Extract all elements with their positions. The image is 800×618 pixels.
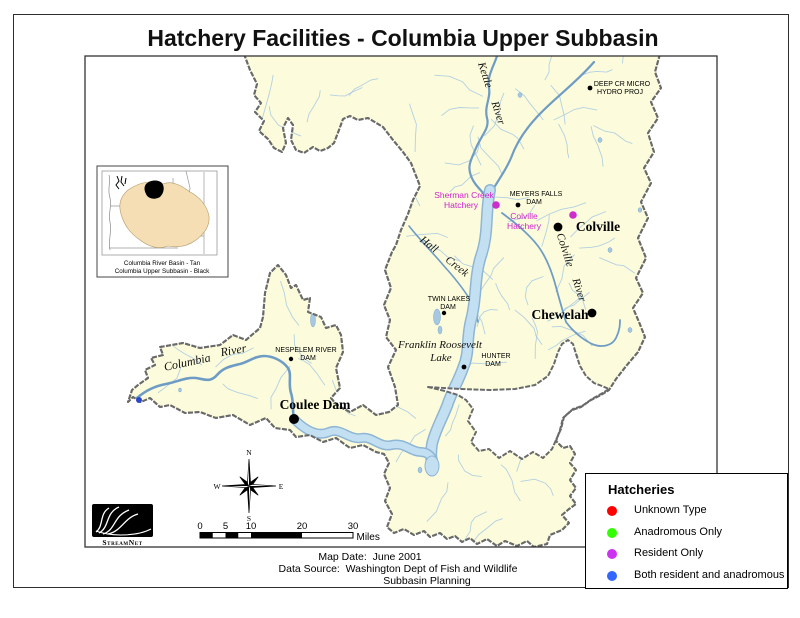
coulee-dam-city-point	[289, 414, 299, 424]
compass-letter-e: E	[279, 482, 284, 491]
legend-item-label: Resident Only	[634, 547, 703, 559]
compass-letter-n: N	[246, 448, 252, 457]
legend-dot-icon	[607, 506, 617, 516]
scale-tick-label: 20	[297, 521, 308, 532]
scale-bar-segment	[200, 533, 213, 539]
legend-dot-icon	[607, 528, 617, 538]
legend-item: Both resident and anadromous	[586, 569, 787, 583]
scale-tick-label: 0	[197, 521, 202, 532]
legend-dot-icon	[607, 549, 617, 559]
inset-locator-map: Columbia River Basin - Tan Columbia Uppe…	[97, 166, 228, 277]
coulee-dam-city-label: Coulee Dam	[280, 397, 352, 412]
nespelem-river-dam-label-2: DAM	[300, 355, 316, 362]
chewelah-city-label: Chewelah	[532, 307, 589, 322]
legend-item: Unknown Type	[586, 504, 787, 518]
scale-tick-label: 10	[246, 521, 257, 532]
stream-line	[155, 304, 170, 340]
franklin-roosevelt-lake-label-1: Franklin Roosevelt	[397, 339, 483, 351]
scale-bar-ticks: 05102030	[197, 521, 358, 532]
hunter-dam-point	[462, 365, 467, 370]
streamnet-logo: StreamNet	[92, 504, 153, 547]
legend-dot-icon	[607, 571, 617, 581]
scale-tick-label: 30	[348, 521, 359, 532]
scale-bar-segment	[251, 533, 302, 539]
scale-bar-segment	[226, 533, 239, 539]
twin-lakes-dam-label-1: TWIN LAKES	[428, 296, 471, 303]
pond	[518, 93, 522, 98]
deep-cr-micro-label-1: DEEP CR MICRO	[594, 81, 651, 88]
twin-lakes-dam-label-2: DAM	[440, 304, 456, 311]
stream-line	[187, 307, 217, 320]
legend-item: Resident Only	[586, 547, 787, 561]
sherman-creek-hatchery-label-1: Sherman Creek	[434, 190, 494, 200]
meyers-falls-dam-label-1: MEYERS FALLS	[510, 191, 563, 198]
pond	[327, 281, 331, 288]
page-title: Hatchery Facilities - Columbia Upper Sub…	[3, 25, 800, 52]
legend-box: Hatcheries Unknown TypeAnadromous OnlyRe…	[585, 473, 788, 589]
pond	[598, 138, 602, 143]
scale-bar-unit: Miles	[357, 532, 380, 543]
colville-city-point	[554, 223, 563, 232]
pond	[628, 328, 632, 333]
stream-line	[384, 156, 409, 183]
twin-lakes-water-2	[438, 326, 442, 334]
map-page: KettleRiverHallCreekColvilleRiverColumbi…	[0, 0, 800, 618]
colville-hatchery-label-1: Colville	[510, 211, 538, 221]
scale-tick-label: 5	[223, 521, 228, 532]
colville-hatchery-point	[569, 211, 577, 219]
hunter-dam-label-2: DAM	[485, 361, 501, 368]
legend-item-label: Both resident and anadromous	[634, 569, 784, 581]
franklin-roosevelt-lake-label-2: Lake	[429, 352, 452, 364]
sherman-creek-hatchery-label-2: Hatchery	[444, 200, 479, 210]
colville-city-label: Colville	[576, 219, 620, 234]
legend-item-label: Anadromous Only	[634, 526, 722, 538]
pond	[608, 248, 612, 253]
compass-letter-w: W	[213, 482, 221, 491]
stream-line	[265, 159, 294, 196]
lake-roosevelt-terminus	[425, 456, 439, 476]
deep-cr-micro-label-2: HYDRO PROJ	[597, 89, 643, 96]
pond	[179, 388, 182, 392]
pond	[418, 467, 422, 473]
pond	[638, 208, 642, 212]
legend-item-label: Unknown Type	[634, 504, 707, 516]
chewelah-city-point	[588, 309, 597, 318]
stream-line	[325, 175, 367, 181]
meyers-falls-dam-point	[516, 203, 521, 208]
streamnet-logo-text: StreamNet	[102, 538, 142, 547]
colville-hatchery-label-2: Hatchery	[507, 221, 542, 231]
sherman-creek-hatchery-point	[492, 201, 500, 209]
inset-caption-line2: Columbia Upper Subbasin - Black	[115, 268, 210, 275]
inset-caption-line1: Columbia River Basin - Tan	[124, 260, 201, 267]
nespelem-river-dam-point	[289, 357, 293, 361]
nespelem-river-dam-label-1: NESPELEM RIVER	[275, 347, 336, 354]
meyers-falls-dam-label-2: DAM	[526, 199, 542, 206]
scale-bar: 05102030 Miles	[197, 521, 379, 543]
hunter-dam-label-1: HUNTER	[481, 353, 510, 360]
inset-upper-subbasin	[145, 180, 164, 198]
legend-item: Anadromous Only	[586, 526, 787, 540]
legend-title: Hatcheries	[608, 482, 674, 497]
stream-line	[218, 72, 251, 76]
columbia-west-point	[136, 397, 142, 403]
deep-cr-micro-hydro-proj-point	[588, 86, 593, 91]
twin-lakes-dam-point	[442, 311, 446, 315]
twin-lakes-water	[434, 309, 441, 325]
compass-rose: NESW	[213, 448, 283, 523]
